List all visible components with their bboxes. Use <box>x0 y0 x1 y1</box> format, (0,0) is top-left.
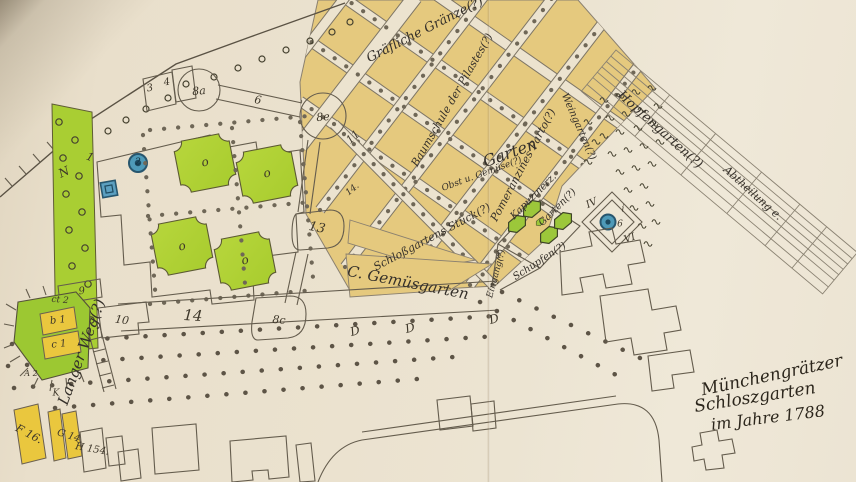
label-10: 10 <box>114 314 129 327</box>
label-c1: c 1 <box>51 339 67 351</box>
label-b1: b 1 <box>50 315 67 327</box>
label-i-small: i <box>622 206 625 215</box>
label-2-fountain: 2 <box>135 159 141 168</box>
historic-garden-plan: Gräfliche Gränze(?) Baumschule der Pilas… <box>0 0 856 482</box>
label-13-pavilion: 13 <box>308 220 327 236</box>
label-6-small: 6 <box>617 221 623 230</box>
paper-fold-line <box>487 0 490 482</box>
label-14-road: 14 <box>183 308 203 324</box>
label-ct2: ct 2 <box>51 296 69 306</box>
parterre-squares <box>143 116 315 304</box>
label-a2: A 2 <box>24 370 37 378</box>
label-8e-rondpoint: 8e <box>316 111 330 123</box>
bottom-buildings <box>14 396 662 482</box>
monastery-outlines <box>560 228 735 470</box>
label-8a-rondpoint: 8a <box>192 85 206 97</box>
label-8c-rondpoint: 8c <box>272 314 286 326</box>
label-k: K <box>53 390 60 399</box>
label-9: 9 <box>78 287 86 298</box>
